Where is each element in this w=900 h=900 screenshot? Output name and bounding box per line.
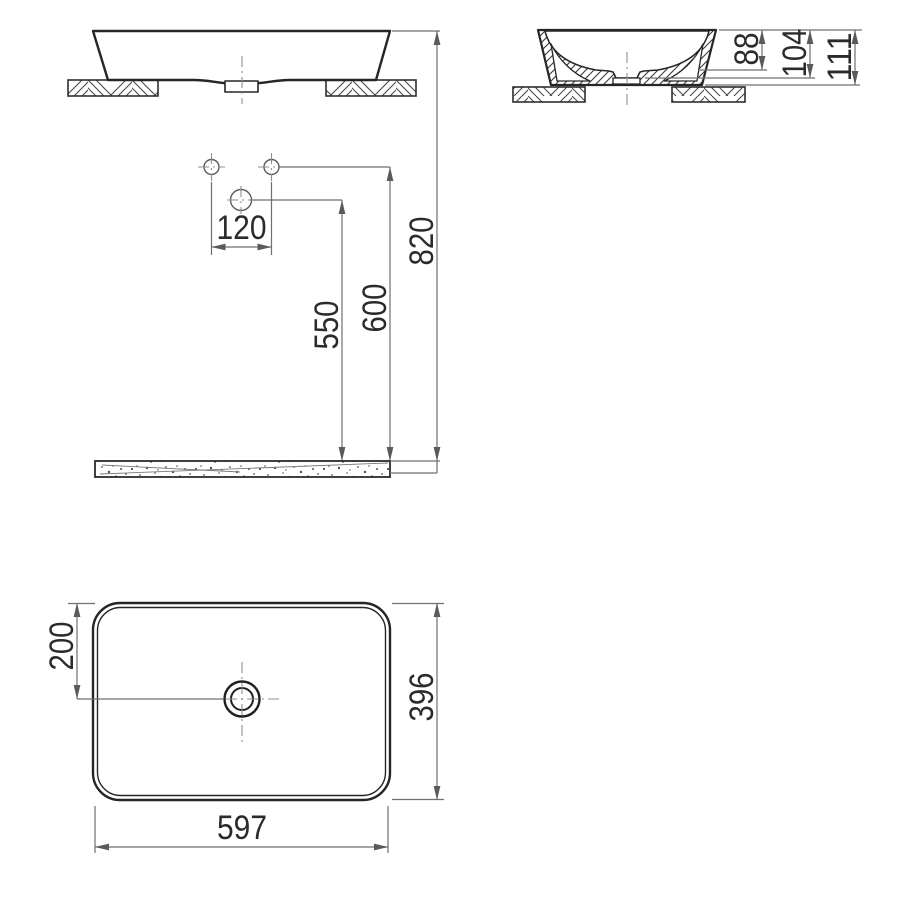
installation-diagram: 120 550 600 820 <box>198 31 441 473</box>
technical-drawing-page: 88 104 111 120 550 600 820 <box>0 0 900 900</box>
section-view: 88 104 111 <box>513 29 862 109</box>
dim-label-396: 396 <box>403 673 441 722</box>
dim-label-597: 597 <box>217 809 267 847</box>
dim-label-820: 820 <box>403 217 441 266</box>
washbasin-technical-drawing: 88 104 111 120 550 600 820 <box>0 0 900 900</box>
dim-label-120: 120 <box>217 209 267 247</box>
countertop-section-left <box>68 80 158 96</box>
dim-label-200: 200 <box>43 622 81 671</box>
countertop-section2-left <box>513 87 585 102</box>
countertop-section-right <box>326 80 416 96</box>
plan-view: 200 396 597 <box>43 603 444 853</box>
dim-label-111: 111 <box>821 33 859 82</box>
front-view <box>68 31 440 104</box>
dim-label-104: 104 <box>776 29 814 78</box>
floor-slab <box>95 461 440 477</box>
floor-extension-lines <box>390 461 440 473</box>
dim-label-550: 550 <box>308 301 346 350</box>
countertop-section2-right <box>672 87 745 102</box>
dim-label-88: 88 <box>728 33 766 66</box>
dim-label-600: 600 <box>356 284 394 333</box>
